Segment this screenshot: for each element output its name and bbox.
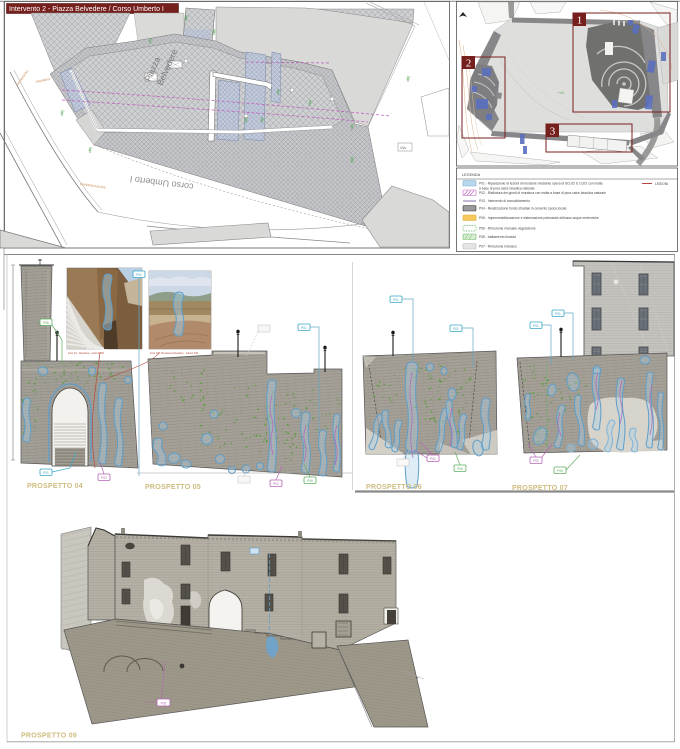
- svg-text:P02: P02: [533, 459, 539, 463]
- svg-text:Intervento 2 - Piazza Belveder: Intervento 2 - Piazza Belvedere / Corso …: [9, 6, 164, 13]
- svg-text:P06: P06: [43, 321, 49, 325]
- svg-text:a base di pura calce idraulica: a base di pura calce idraulica naturale: [479, 187, 535, 191]
- svg-text:P02: P02: [273, 482, 279, 486]
- svg-text:P01: P01: [43, 471, 49, 475]
- svg-text:P02: P02: [161, 701, 167, 705]
- svg-text:P03 - Intervento di consolidam: P03 - Intervento di consolidamento: [479, 199, 530, 203]
- svg-text:P01: P01: [301, 326, 307, 330]
- svg-text:PROSPETTO 07: PROSPETTO 07: [512, 484, 568, 492]
- svg-text:+4.0: +4.0: [558, 91, 565, 95]
- svg-text:P04 - Realizzazione fondo stra: P04 - Realizzazione fondo stradale in ce…: [479, 207, 567, 211]
- svg-text:P01: P01: [555, 312, 561, 316]
- svg-text:P01: P01: [393, 298, 399, 302]
- svg-text:Foto 02 - Muratura belvedere -: Foto 02 - Muratura belvedere - lesioni P…: [150, 351, 199, 355]
- svg-text:P02: P02: [430, 457, 436, 461]
- svg-text:P02: P02: [101, 476, 107, 480]
- svg-text:PROSPETTO 06: PROSPETTO 06: [366, 483, 422, 491]
- svg-text:1: 1: [577, 15, 583, 27]
- svg-text:P02 - Ristilatura dei giunti d: P02 - Ristilatura dei giunti di muratura…: [479, 191, 606, 195]
- svg-text:P01: P01: [136, 273, 142, 277]
- svg-text:P05 - Impermeabilizzazione e s: P05 - Impermeabilizzazione e sistemazion…: [479, 216, 599, 220]
- svg-text:P01 - Riparazione di lesioni d: P01 - Riparazione di lesioni di murature…: [479, 182, 603, 186]
- svg-text:PROSPETTO 04: PROSPETTO 04: [27, 482, 83, 490]
- svg-text:P01: P01: [453, 327, 459, 331]
- svg-text:Via: Via: [400, 145, 406, 150]
- svg-text:Foto 01 - Muratura - lesioni P: Foto 01 - Muratura - lesioni P01: [68, 351, 105, 355]
- svg-text:PROSPETTO 05: PROSPETTO 05: [145, 483, 201, 491]
- svg-text:PROSPETTO 09: PROSPETTO 09: [21, 732, 77, 740]
- svg-text:P01: P01: [533, 324, 539, 328]
- svg-text:P06: P06: [457, 467, 463, 471]
- svg-text:P06: P06: [307, 479, 313, 483]
- svg-text:LEGENDA: LEGENDA: [462, 173, 481, 177]
- svg-text:P08 - trattamento biocida: P08 - trattamento biocida: [479, 235, 516, 239]
- svg-text:P06 - Rimozione manuale vegeta: P06 - Rimozione manuale vegetazione: [479, 227, 536, 231]
- svg-text:2: 2: [466, 58, 472, 70]
- svg-text:P07 - Rimozione intonaco: P07 - Rimozione intonaco: [479, 245, 517, 249]
- svg-text:LESIONI: LESIONI: [655, 182, 668, 186]
- svg-text:P06: P06: [557, 469, 563, 473]
- svg-text:3: 3: [550, 126, 556, 138]
